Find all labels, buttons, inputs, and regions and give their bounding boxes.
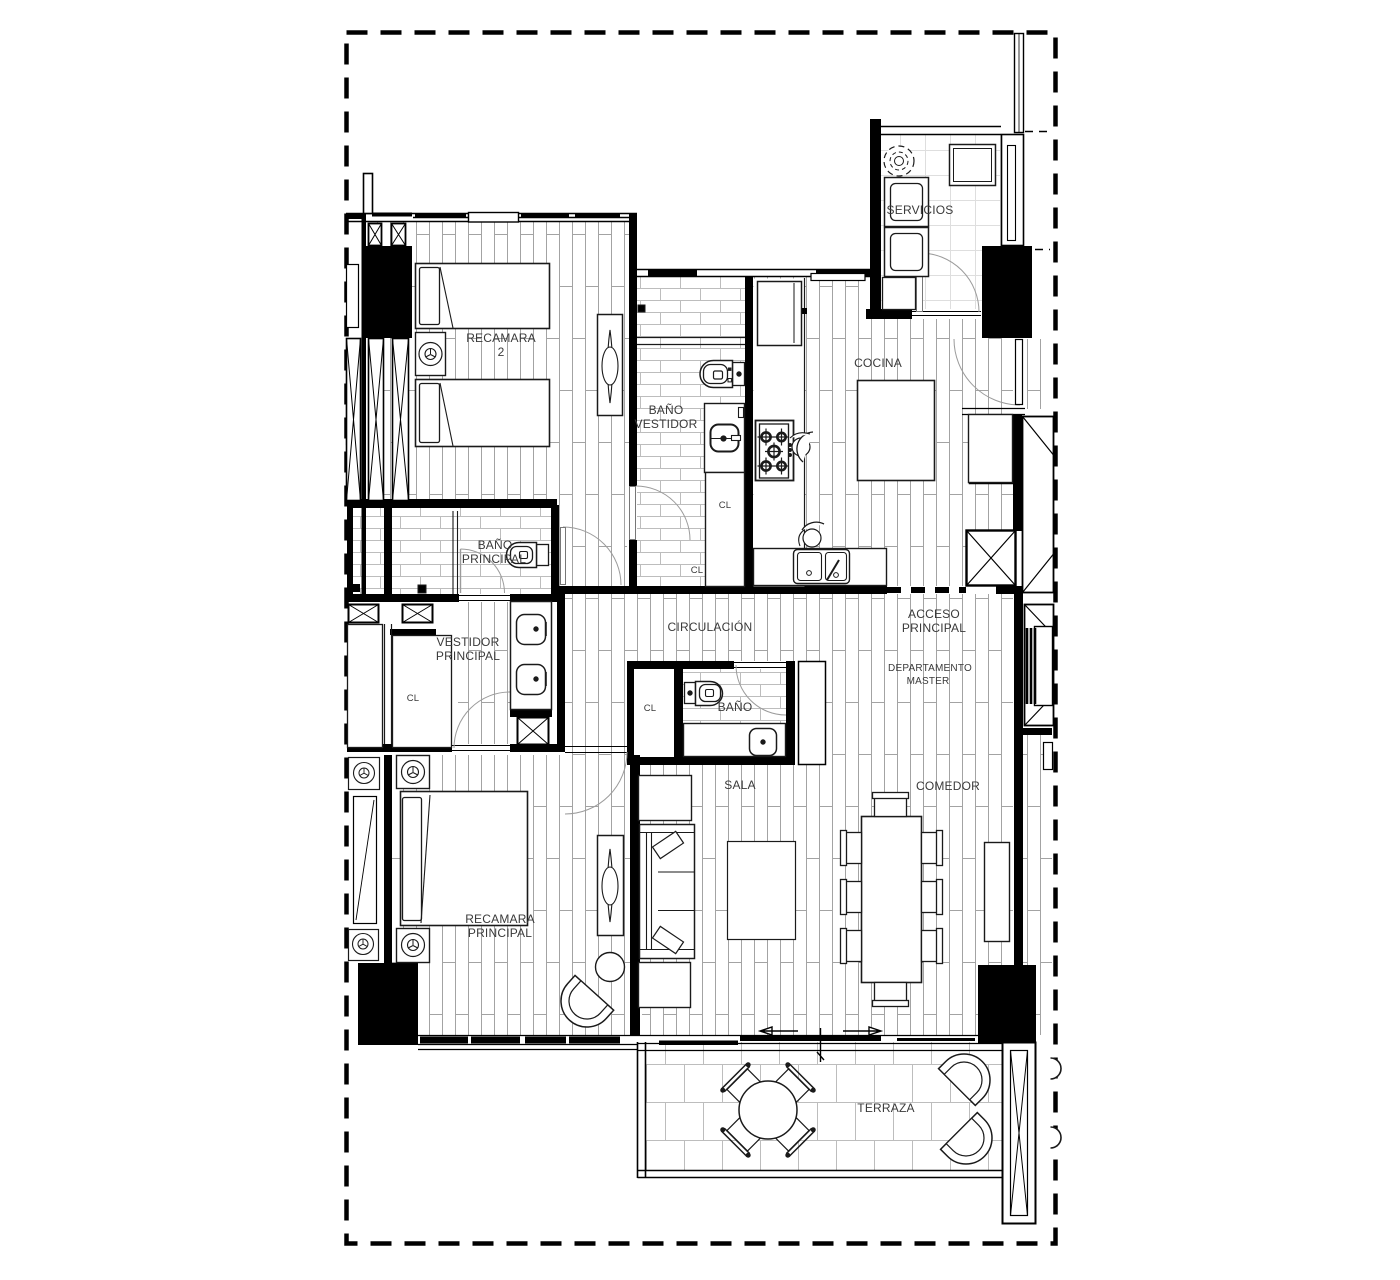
svg-text:CL: CL (644, 703, 657, 714)
svg-text:BAÑO: BAÑO (478, 538, 513, 552)
svg-text:PRINCIPAL: PRINCIPAL (902, 621, 966, 635)
svg-text:CL: CL (407, 693, 420, 704)
svg-text:CL: CL (691, 565, 704, 576)
svg-text:TERRAZA: TERRAZA (857, 1101, 914, 1115)
svg-text:RECAMARA: RECAMARA (466, 331, 536, 345)
svg-text:DEPARTAMENTO: DEPARTAMENTO (888, 663, 972, 674)
svg-text:VESTIDOR: VESTIDOR (437, 635, 500, 649)
svg-text:BAÑO: BAÑO (649, 403, 684, 417)
svg-text:PRINCIPAL: PRINCIPAL (462, 552, 526, 566)
svg-text:SERVICIOS: SERVICIOS (887, 203, 954, 217)
svg-text:PRINCIPAL: PRINCIPAL (436, 649, 500, 663)
svg-text:COCINA: COCINA (854, 356, 902, 370)
svg-text:BAÑO: BAÑO (718, 700, 753, 714)
svg-text:VESTIDOR: VESTIDOR (635, 417, 698, 431)
svg-text:2: 2 (498, 345, 505, 359)
svg-text:ACCESO: ACCESO (908, 607, 960, 621)
svg-text:CIRCULACIÓN: CIRCULACIÓN (668, 619, 753, 634)
svg-text:MASTER: MASTER (907, 676, 950, 687)
svg-text:CL: CL (719, 500, 732, 511)
svg-text:PRINCIPAL: PRINCIPAL (468, 926, 532, 940)
svg-text:COMEDOR: COMEDOR (916, 779, 980, 793)
svg-text:RECAMARA: RECAMARA (465, 912, 535, 926)
svg-text:SALA: SALA (724, 778, 756, 792)
